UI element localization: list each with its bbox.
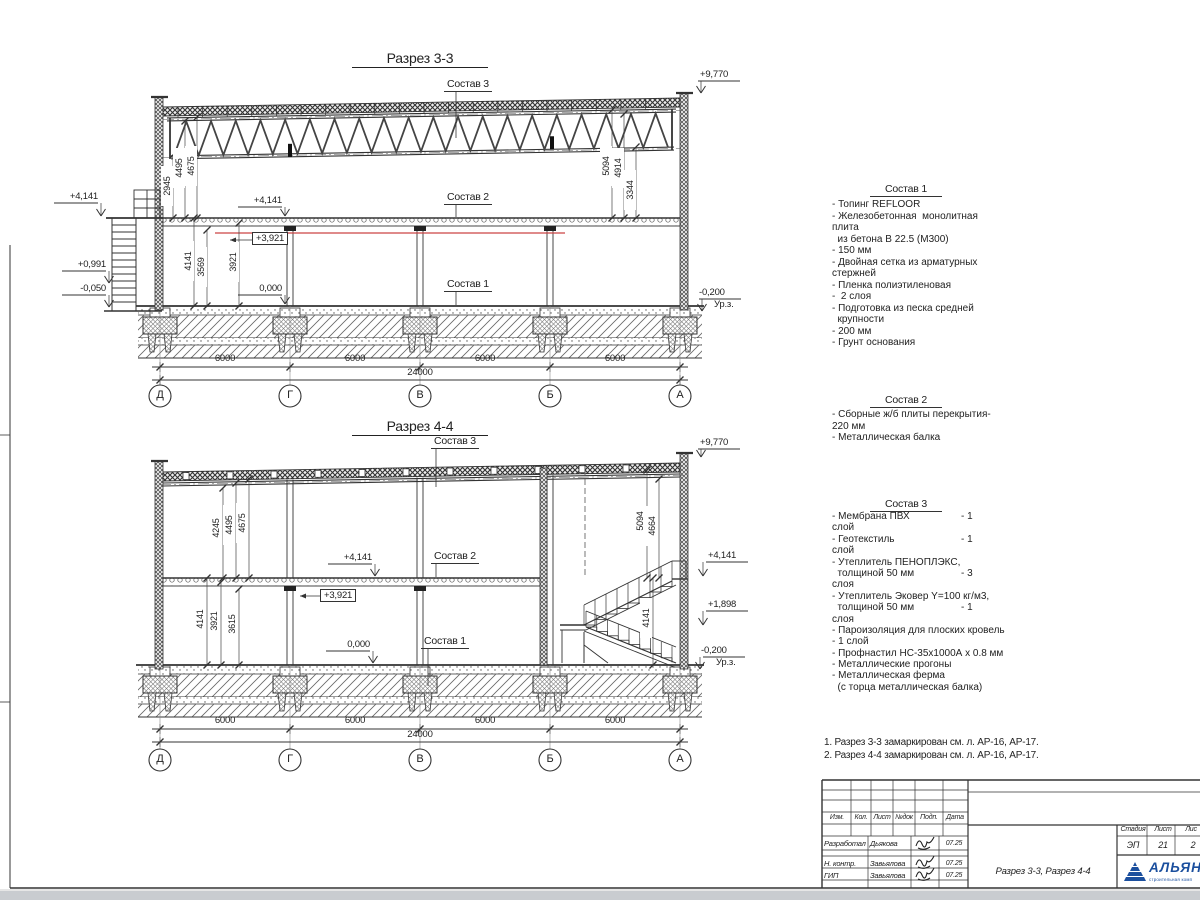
spec-line-text: (с торца металлическая балка) — [832, 682, 982, 693]
s33-grid-bubble-label: Д — [149, 389, 171, 401]
spec-line: - Пароизоляция для плоских кровель — [832, 625, 1082, 636]
spec-line-text: - Утеплитель Эковер Y=100 кг/м3, — [832, 591, 989, 602]
stamp-doc-title: Разрез 3-3, Разрез 4-4 — [970, 866, 1116, 877]
spec-line-text: - Подготовка из песка средней — [832, 303, 974, 314]
spec-line-text: - 2 слоя — [832, 291, 871, 302]
spec-line: - Грунт основания — [832, 337, 1082, 349]
spec-line: плита — [832, 222, 1082, 234]
section-33-title: Разрез 3-3 — [352, 50, 488, 68]
stamp-stage-value: ЭП — [1117, 840, 1149, 850]
s44-dim: 4141 — [640, 598, 652, 638]
stamp-role: Разработал — [824, 839, 866, 848]
spec-line: - 200 мм — [832, 326, 1082, 338]
spec-line-text: стержней — [832, 268, 876, 279]
spec-line-text: - Сборные ж/б плиты перекрытия- — [832, 409, 991, 420]
spec-line: - 2 слоя — [832, 291, 1082, 303]
spec-line-text: слой — [832, 522, 854, 533]
s33-elev-slab-in: +4,141 — [238, 195, 282, 206]
spec-line: слой — [832, 545, 1082, 556]
spec-line-text: толщиной 50 мм — [832, 602, 914, 613]
spec-line: - Двойная сетка из арматурных — [832, 257, 1082, 269]
spec-line-text: слоя — [832, 614, 854, 625]
s44-elev-3921: +3,921 — [320, 589, 356, 602]
spec-line-text: - Грунт основания — [832, 337, 915, 348]
stamp-name: Завьялова — [870, 871, 905, 880]
s33-sostav3-label: Состав 3 — [444, 78, 492, 92]
s33-elev-roof: +9,770 — [700, 69, 744, 80]
spec-line-text: слоя — [832, 579, 854, 590]
s33-dim: 3569 — [195, 247, 207, 287]
s33-elev-3921: +3,921 — [252, 232, 288, 245]
s44-bay-dim: 6000 — [455, 715, 515, 726]
s44-sostav1-label: Состав 1 — [421, 635, 469, 649]
spec-line-text: - Металлическая ферма — [832, 670, 945, 681]
spec-line-text: - 200 мм — [832, 326, 871, 337]
spec-sostav2-title: Состав 2 — [870, 394, 942, 408]
s33-grid-bubble-label: В — [409, 389, 431, 401]
s33-grid-bubble-label: Б — [539, 389, 561, 401]
spec-line: - Пленка полиэтиленовая — [832, 280, 1082, 292]
spec-line: - Сборные ж/б плиты перекрытия- — [832, 409, 1082, 421]
spec-line-text: - Двойная сетка из арматурных — [832, 257, 977, 268]
spec-line-text: - 150 мм — [832, 245, 871, 256]
s44-bay-dim: 6000 — [585, 715, 645, 726]
spec-sostav2-list: - Сборные ж/б плиты перекрытия- 220 мм -… — [832, 409, 1082, 444]
spec-line-value: - 1 — [961, 602, 973, 613]
s44-grid-bubble-label: А — [669, 753, 691, 765]
s44-dim: 4141 — [194, 599, 206, 639]
spec-sostav1-title: Состав 1 — [870, 183, 942, 197]
s33-elev-zero: 0,000 — [238, 283, 282, 294]
spec-line: крупности — [832, 314, 1082, 326]
spec-line-text: 220 мм — [832, 421, 865, 432]
company-logo-subtitle: строительная комп — [1149, 877, 1192, 882]
spec-line-text: - Металлические прогоны — [832, 659, 951, 670]
spec-sostav3-title: Состав 3 — [870, 498, 942, 512]
spec-line-text: - Металлическая балка — [832, 432, 940, 443]
s44-elev-slab-in: +4,141 — [328, 552, 372, 563]
drawing-sheet: Разрез 3-3 Состав 3 Состав 2 Состав 1 +9… — [0, 0, 1200, 900]
s33-elev-ground: -0,200 — [699, 287, 743, 298]
spec-line-text: - 1 слой — [832, 636, 869, 647]
spec-line: - Профнастил НС-35х1000А х 0.8 мм — [832, 648, 1082, 659]
s33-grid-bubble-label: А — [669, 389, 691, 401]
spec-line-value: - 1 — [961, 511, 973, 522]
s44-ground-label: Ур.з. — [716, 657, 760, 668]
spec-line-text: - Пароизоляция для плоских кровель — [832, 625, 1005, 636]
s44-grid-bubble-label: В — [409, 753, 431, 765]
s33-elev-slab-left: +4,141 — [54, 191, 98, 202]
s33-elev-0991: +0,991 — [62, 259, 106, 270]
s33-bay-dim: 6000 — [585, 353, 645, 364]
spec-line: из бетона В 22.5 (М300) — [832, 234, 1082, 246]
s33-bay-dim: 6000 — [325, 353, 385, 364]
note-line: 2. Разрез 4-4 замаркирован см. л. АР-16,… — [824, 750, 1039, 763]
s33-bay-dim: 6000 — [195, 353, 255, 364]
spec-line: - Железобетонная монолитная — [832, 211, 1082, 223]
spec-line-value: - 1 — [961, 534, 973, 545]
s44-bay-dim: 6000 — [325, 715, 385, 726]
drawing-linework — [0, 0, 1200, 900]
stamp-name: Дьякова — [870, 839, 897, 848]
spec-line: 220 мм — [832, 421, 1082, 433]
s44-dim: 4495 — [223, 505, 235, 545]
spec-line: слой — [832, 522, 1082, 533]
stamp-listov-col: Лис — [1175, 826, 1200, 833]
s33-ground-label: Ур.з. — [714, 299, 758, 310]
spec-line-text: - Геотекстиль — [832, 534, 895, 545]
s44-dim: 4675 — [236, 503, 248, 543]
s33-sostav2-label: Состав 2 — [444, 191, 492, 205]
stamp-sheet-number: 21 — [1147, 840, 1179, 850]
s33-bay-dim: 6000 — [455, 353, 515, 364]
spec-line-text: - Мембрана ПВХ — [832, 511, 910, 522]
spec-line-text: слой — [832, 545, 854, 556]
stamp-name: Завьялова — [870, 859, 905, 868]
spec-line-text: - Топинг REFLOOR — [832, 199, 920, 210]
s33-total-dim: 24000 — [390, 367, 450, 378]
s44-elev-ground: -0,200 — [701, 645, 745, 656]
spec-line: - Топинг REFLOOR — [832, 199, 1082, 211]
spec-line: толщиной 50 мм- 1 — [832, 602, 1082, 613]
stamp-date: 07.25 — [941, 860, 967, 867]
s33-grid-bubble-label: Г — [279, 389, 301, 401]
spec-line: - Утеплитель ПЕНОПЛЭКС, — [832, 557, 1082, 568]
spec-line-text: - Железобетонная монолитная — [832, 211, 978, 222]
spec-sostav3-list: - Мембрана ПВХ- 1 слой - Геотекстиль- 1 … — [832, 511, 1082, 693]
stamp-col-data: Дата — [940, 814, 970, 821]
s33-dim: 4914 — [612, 148, 624, 188]
s33-dim: 5094 — [600, 146, 612, 186]
spec-line: слоя — [832, 579, 1082, 590]
s44-elev-zero: 0,000 — [326, 639, 370, 650]
s44-dim: 4664 — [646, 506, 658, 546]
spec-line: - Металлическая ферма — [832, 670, 1082, 681]
spec-line-text: крупности — [832, 314, 884, 325]
s44-sostav2-label: Состав 2 — [431, 550, 479, 564]
s44-grid-bubble-label: Г — [279, 753, 301, 765]
stamp-date: 07.25 — [941, 840, 967, 847]
spec-line: - Подготовка из песка средней — [832, 303, 1082, 315]
spec-line-text: - Профнастил НС-35х1000А х 0.8 мм — [832, 648, 1003, 659]
spec-line: - Мембрана ПВХ- 1 — [832, 511, 1082, 522]
s44-dim: 3921 — [208, 601, 220, 641]
s44-grid-bubble-label: Д — [149, 753, 171, 765]
s33-dim: 3921 — [227, 242, 239, 282]
s44-dim: 5094 — [634, 501, 646, 541]
spec-line: - Металлические прогоны — [832, 659, 1082, 670]
spec-line-text: из бетона В 22.5 (М300) — [832, 234, 949, 245]
s44-elev-slab-right: +4,141 — [708, 550, 752, 561]
spec-line: стержней — [832, 268, 1082, 280]
stamp-role: ГИП — [824, 871, 838, 880]
spec-line-text: - Пленка полиэтиленовая — [832, 280, 951, 291]
s33-dim: 4675 — [185, 146, 197, 186]
s44-grid-bubble-label: Б — [539, 753, 561, 765]
spec-line-text: плита — [832, 222, 859, 233]
s33-dim: 2945 — [161, 166, 173, 206]
s44-bay-dim: 6000 — [195, 715, 255, 726]
s33-elev-m0050: -0,050 — [62, 283, 106, 294]
s44-sostav3-label: Состав 3 — [431, 435, 479, 449]
s44-elev-roof: +9,770 — [700, 437, 744, 448]
spec-line-text: толщиной 50 мм — [832, 568, 914, 579]
s33-dim: 4141 — [182, 241, 194, 281]
spec-line-value: - 3 — [961, 568, 973, 579]
stamp-stage-col: Стадия — [1117, 826, 1149, 833]
s33-sostav1-label: Состав 1 — [444, 278, 492, 292]
spec-line: - 150 мм — [832, 245, 1082, 257]
spec-sostav1-list: - Топинг REFLOOR - Железобетонная моноли… — [832, 199, 1082, 349]
spec-line: - Утеплитель Эковер Y=100 кг/м3, — [832, 591, 1082, 602]
spec-line: - Металлическая балка — [832, 432, 1082, 444]
s44-dim: 4245 — [210, 508, 222, 548]
stamp-role: Н. контр. — [824, 859, 856, 868]
s44-total-dim: 24000 — [390, 729, 450, 740]
note-line: 1. Разрез 3-3 замаркирован см. л. АР-16,… — [824, 737, 1039, 750]
spec-line: (с торца металлическая балка) — [832, 682, 1082, 693]
s33-dim: 3344 — [624, 170, 636, 210]
spec-line: - Геотекстиль- 1 — [832, 534, 1082, 545]
spec-line: слоя — [832, 614, 1082, 625]
spec-line: толщиной 50 мм- 3 — [832, 568, 1082, 579]
s44-elev-1898: +1,898 — [708, 599, 752, 610]
s33-dim: 4495 — [173, 148, 185, 188]
company-logo-text: АЛЬЯН — [1149, 860, 1200, 875]
spec-line-text: - Утеплитель ПЕНОПЛЭКС, — [832, 557, 960, 568]
s44-dim: 3615 — [226, 604, 238, 644]
stamp-date: 07.25 — [941, 872, 967, 879]
spec-line: - 1 слой — [832, 636, 1082, 647]
section-44-title: Разрез 4-4 — [352, 418, 488, 436]
stamp-sheets-total: 2 — [1177, 840, 1200, 850]
